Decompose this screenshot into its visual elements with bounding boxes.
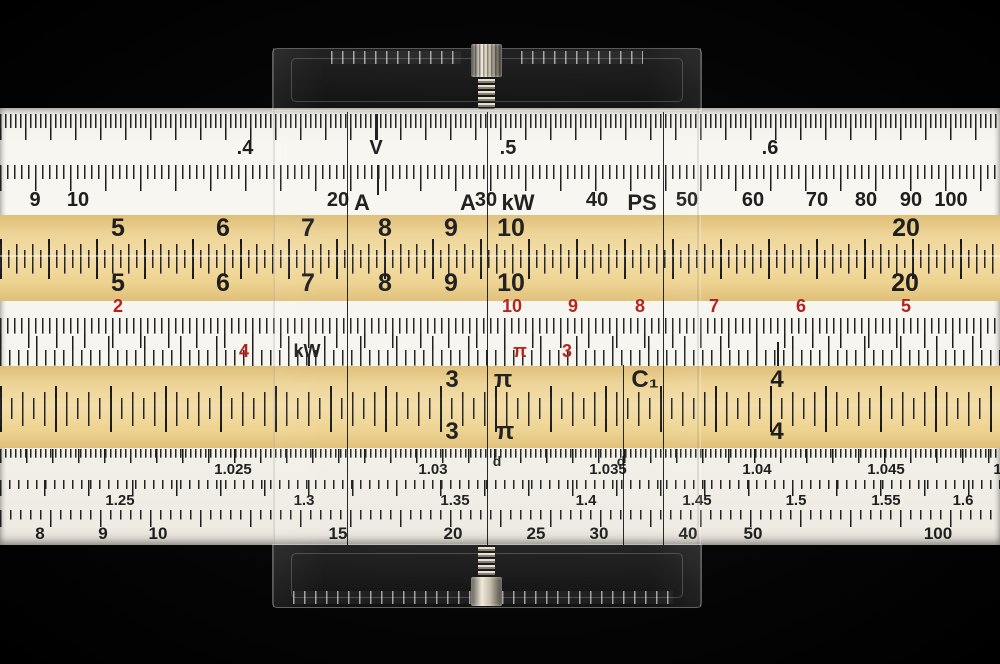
slide-rule-photo: .4V.5.6 9102030405060708090100 AAkWPS 56… bbox=[0, 0, 1000, 664]
cursor-left-edge bbox=[273, 108, 275, 545]
cursor-hairline-right bbox=[663, 112, 665, 545]
cursor-adjust-screw-top bbox=[471, 44, 502, 77]
cursor-hairline-center bbox=[487, 112, 489, 545]
cursor-right-edge bbox=[697, 108, 699, 545]
cursor-grip-serration bbox=[521, 51, 643, 64]
cursor-hairline-diameter bbox=[623, 365, 625, 545]
cursor-hairline-left bbox=[347, 112, 349, 545]
cursor-assembly bbox=[0, 0, 1000, 664]
cursor-screw-thread-bottom bbox=[478, 545, 495, 577]
cursor-adjust-screw-bottom bbox=[471, 577, 502, 606]
cursor-screw-thread-top bbox=[478, 77, 495, 109]
cursor-grip-serration bbox=[331, 51, 461, 64]
